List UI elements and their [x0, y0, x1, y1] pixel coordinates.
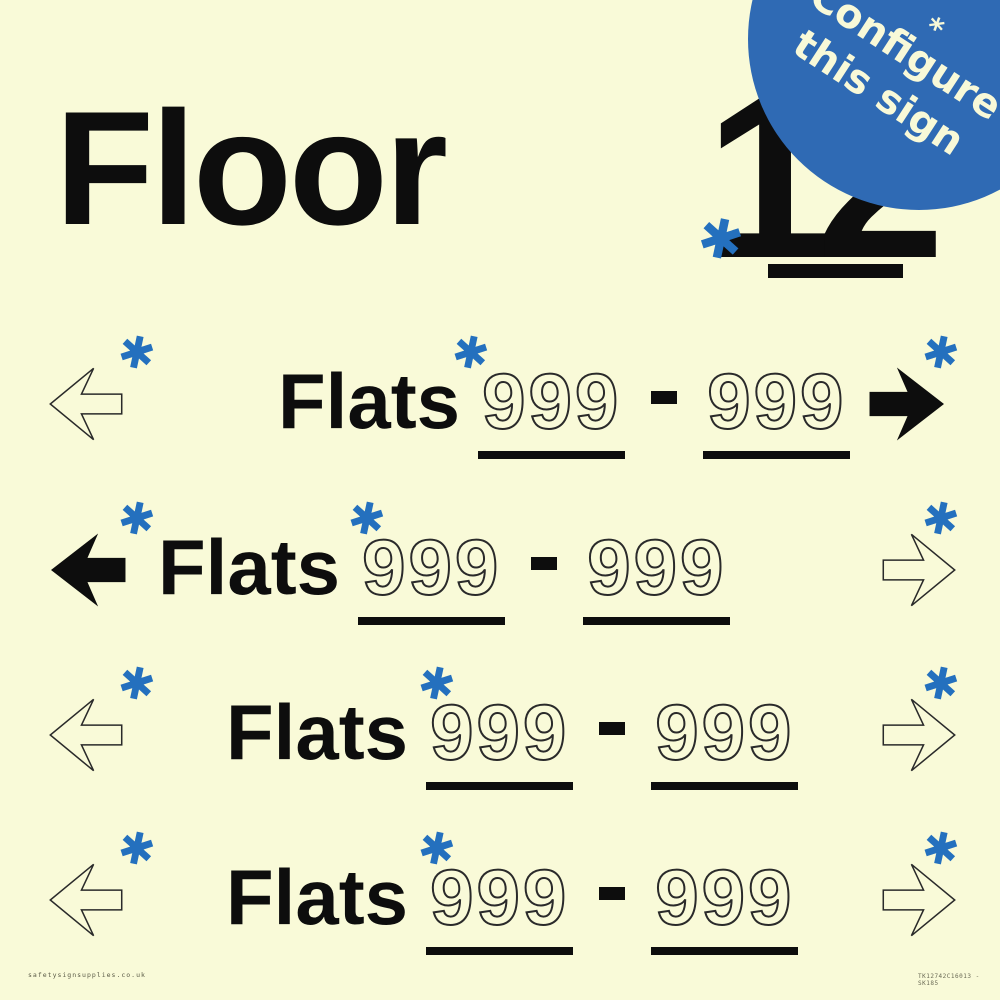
direction-row-3: ✱ Flats999999 ✱ ✱	[0, 661, 1000, 811]
flat-number-start: 999	[478, 357, 625, 459]
direction-row-1: ✱ Flats999999 ✱ ✱	[0, 330, 1000, 480]
configurable-asterisk-icon: ✱	[114, 660, 159, 711]
flats-label: Flats	[226, 688, 408, 776]
supplier-website: safetysignsupplies.co.uk	[28, 971, 146, 979]
configurable-asterisk-icon: ✱	[918, 329, 963, 380]
configurable-asterisk-icon: ✱	[114, 825, 159, 876]
row-text: Flats999999	[158, 528, 730, 606]
direction-row-4: ✱ Flats999999 ✱ ✱	[0, 826, 1000, 976]
configurable-asterisk-icon: ✱	[114, 329, 159, 380]
floor-number-underline	[768, 264, 903, 278]
range-dash	[531, 557, 557, 570]
left-arrow-icon	[45, 532, 133, 608]
range-dash	[599, 722, 625, 735]
flat-number-end: 999	[651, 853, 798, 955]
flat-number-end: 999	[583, 523, 730, 625]
left-arrow-icon	[42, 366, 130, 442]
row-text: Flats999999	[226, 693, 798, 771]
row-text: Flats999999	[226, 858, 798, 936]
left-arrow-icon	[42, 862, 130, 938]
range-dash	[651, 391, 677, 404]
flat-number-end: 999	[651, 688, 798, 790]
product-code: TK12742C16013 - SK185	[918, 973, 1000, 987]
flats-label: Flats	[226, 853, 408, 941]
range-dash	[599, 887, 625, 900]
configurable-asterisk-icon: ✱	[114, 495, 159, 546]
direction-row-2: ✱ Flats999999 ✱ ✱	[0, 496, 1000, 646]
flats-label: Flats	[158, 523, 340, 611]
floor-title: Floor	[55, 88, 445, 250]
left-arrow-icon	[42, 697, 130, 773]
floor-direction-sign: Floor 12 ✱ Configure this sign * ✱ Flats…	[0, 0, 1000, 1000]
row-text: Flats999999	[278, 362, 850, 440]
flat-number-end: 999	[703, 357, 850, 459]
flats-label: Flats	[278, 357, 460, 445]
